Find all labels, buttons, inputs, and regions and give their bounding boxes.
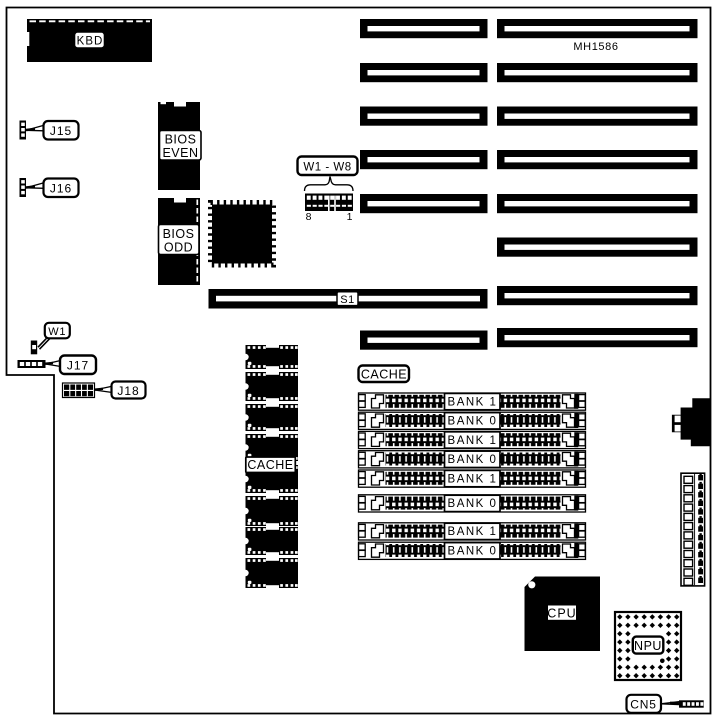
svg-text:J17: J17: [67, 359, 89, 373]
svg-text:NPU: NPU: [634, 639, 662, 653]
svg-text:CPU: CPU: [547, 606, 576, 620]
svg-text:BANK 0: BANK 0: [448, 498, 498, 510]
svg-text:BANK 1: BANK 1: [448, 526, 498, 538]
svg-text:BIOS: BIOS: [165, 133, 197, 147]
svg-text:J15: J15: [50, 124, 72, 138]
svg-text:BANK 1: BANK 1: [448, 473, 498, 485]
svg-text:CACHE: CACHE: [247, 458, 293, 472]
svg-text:BANK 0: BANK 0: [448, 546, 498, 558]
svg-text:J16: J16: [50, 181, 72, 195]
svg-text:1: 1: [347, 211, 353, 223]
svg-text:BANK 1: BANK 1: [448, 396, 498, 408]
svg-text:J18: J18: [117, 384, 139, 398]
svg-text:8: 8: [306, 211, 312, 223]
svg-text:KBD: KBD: [77, 35, 104, 47]
svg-text:BANK 1: BANK 1: [448, 435, 498, 447]
svg-text:CN5: CN5: [630, 697, 656, 711]
svg-text:EVEN: EVEN: [162, 146, 198, 160]
svg-text:S1: S1: [340, 294, 354, 306]
svg-text:MH1586: MH1586: [573, 41, 618, 53]
svg-text:BIOS: BIOS: [163, 227, 195, 241]
svg-text:W1: W1: [48, 326, 66, 338]
svg-text:ODD: ODD: [164, 240, 193, 254]
svg-text:CACHE: CACHE: [361, 368, 407, 382]
svg-text:BANK 0: BANK 0: [448, 454, 498, 466]
svg-text:W1 - W8: W1 - W8: [303, 161, 351, 173]
svg-text:BANK 0: BANK 0: [448, 416, 498, 428]
